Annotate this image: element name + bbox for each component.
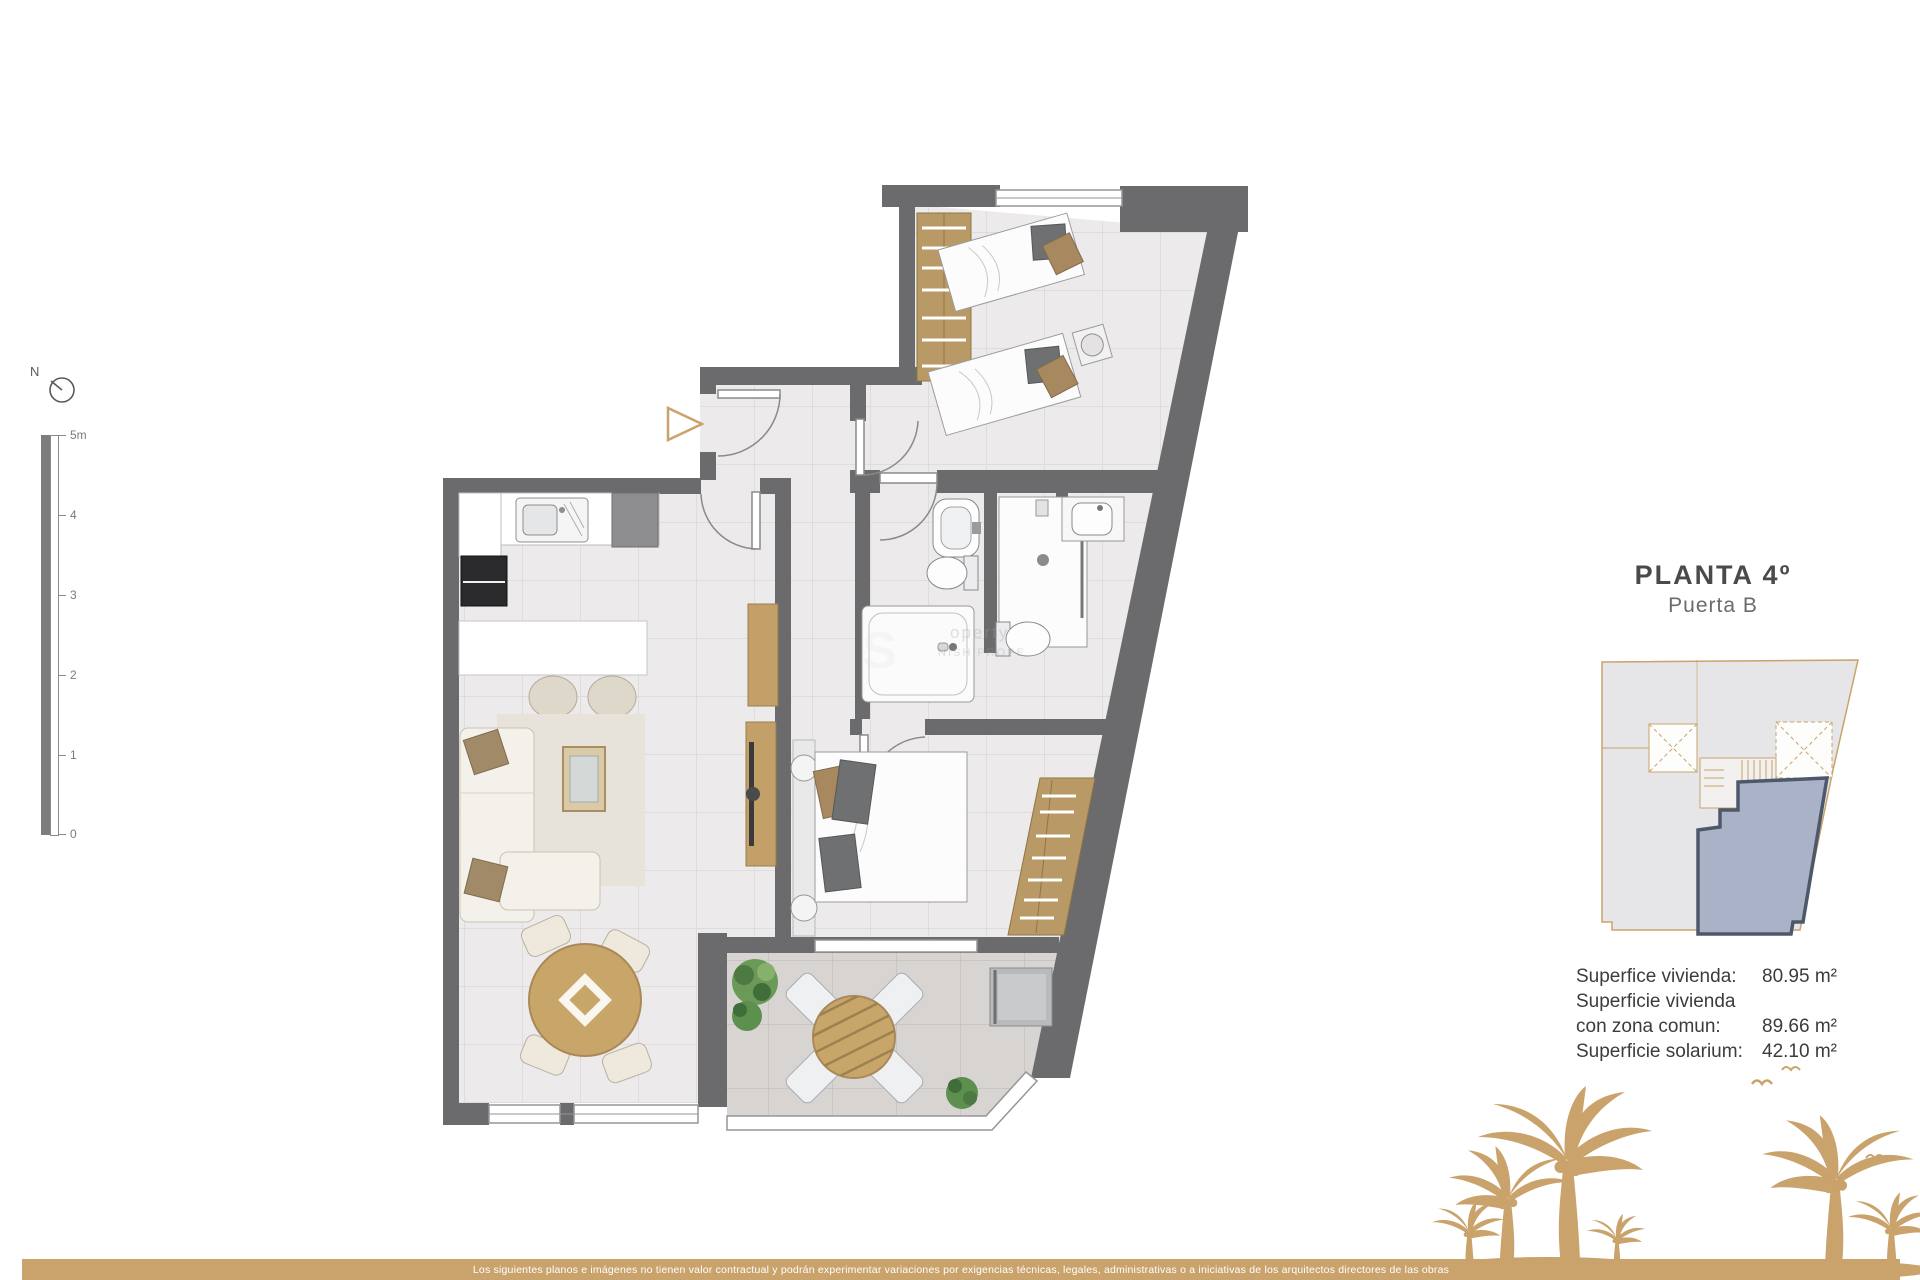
tv-unit — [746, 722, 776, 866]
palm-trees-graphic — [1420, 1040, 1920, 1280]
ac-unit — [990, 968, 1052, 1026]
scale-label-0: 0 — [70, 827, 77, 841]
page-title: PLANTA 4º — [1563, 560, 1863, 591]
bed-pillow-gray — [819, 834, 861, 892]
scale-label-4: 4 — [70, 508, 77, 522]
svg-text:NISH PROPE: NISH PROPE — [938, 647, 1026, 659]
bedside-lamp — [791, 755, 817, 781]
svg-text:S: S — [862, 622, 897, 680]
north-label: N — [30, 364, 39, 379]
disclaimer-band: Los siguientes planos e imágenes no tien… — [22, 1259, 1900, 1280]
scale-bar-fill — [41, 435, 50, 835]
area-label: Superfice vivienda: — [1576, 964, 1762, 989]
scale-label-2: 2 — [70, 668, 77, 682]
kitchen-sink — [516, 498, 588, 542]
cooktop — [612, 493, 658, 547]
scale-bar: 5m 4 3 2 1 0 — [36, 428, 126, 848]
page-subtitle: Puerta B — [1563, 594, 1863, 618]
scale-label-5m: 5m — [70, 428, 87, 442]
page: operty NISH PROPE S N 5m 4 3 2 1 0 PLANT… — [0, 0, 1920, 1280]
scale-bar-outline — [50, 435, 59, 836]
stool — [529, 676, 577, 718]
svg-text:operty: operty — [950, 623, 1009, 642]
kitchen-island — [459, 621, 647, 675]
area-label: Superficie vivienda con zona comun: — [1576, 989, 1762, 1039]
key-plan — [1580, 640, 1890, 960]
lightwell-square-dashed — [1776, 722, 1832, 778]
north-indicator: N — [24, 362, 94, 418]
disclaimer-text: Los siguientes planos e imágenes no tien… — [473, 1264, 1449, 1276]
area-row: Superficie vivienda con zona comun: 89.6… — [1576, 989, 1886, 1039]
kitchen-counter-left — [459, 493, 501, 557]
tall-cabinet — [748, 604, 778, 706]
coffee-table — [563, 747, 605, 811]
toilet — [927, 556, 978, 590]
title-block: PLANTA 4º Puerta B — [1563, 560, 1863, 618]
washbasin — [933, 499, 981, 557]
scale-label-1: 1 — [70, 748, 77, 762]
plant — [732, 1001, 762, 1031]
area-row: Superfice vivienda: 80.95 m² — [1576, 964, 1886, 989]
stool — [588, 676, 636, 718]
laundry-basin — [1062, 497, 1124, 541]
area-value: 80.95 m² — [1762, 964, 1886, 989]
master-bedroom-window — [815, 940, 977, 952]
entry-arrow-marker — [668, 408, 702, 440]
plant — [946, 1077, 978, 1109]
scale-label-3: 3 — [70, 588, 77, 602]
area-value: 89.66 m² — [1762, 1014, 1886, 1039]
lightwell-square — [1649, 724, 1697, 772]
plant — [732, 959, 778, 1005]
bed-pillow-gray — [832, 760, 876, 824]
bedside-lamp — [791, 895, 817, 921]
